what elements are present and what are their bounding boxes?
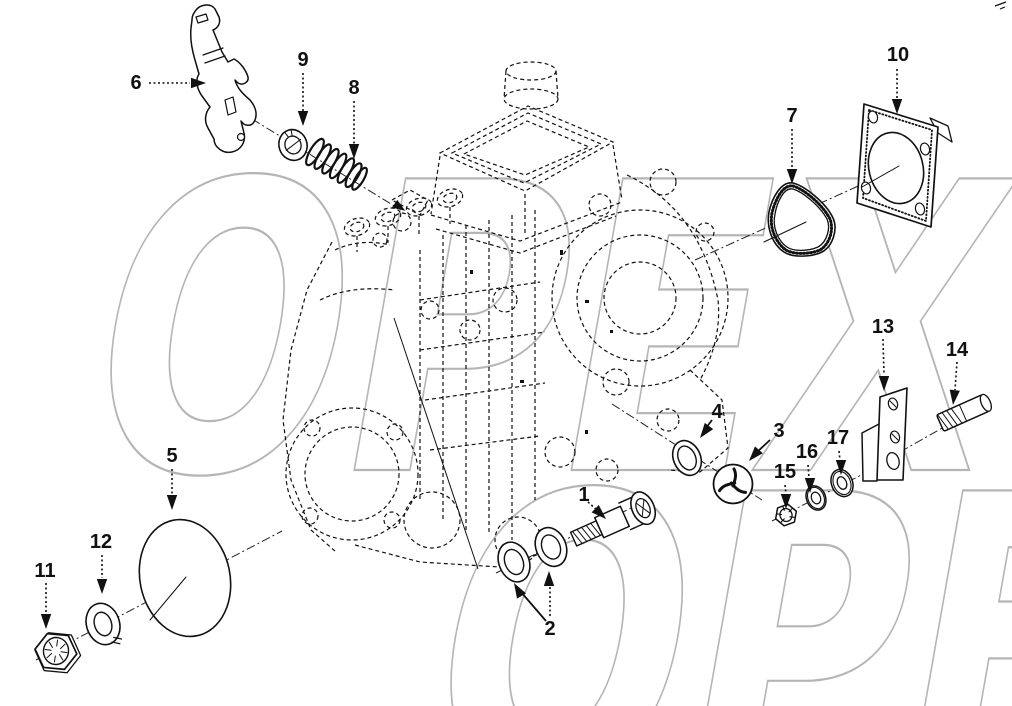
callout-label-13: 13 — [872, 317, 894, 337]
callout-label-15: 15 — [774, 462, 796, 482]
callout-label-17: 17 — [827, 428, 849, 448]
arrowhead-11 — [41, 614, 51, 629]
callout-label-10: 10 — [887, 45, 909, 65]
callout-label-5: 5 — [166, 446, 177, 466]
arrowhead-12 — [97, 579, 107, 594]
callout-label-16: 16 — [796, 442, 818, 462]
part-nut — [32, 630, 83, 675]
watermark-text-row2: OPEX — [398, 412, 1012, 706]
callout-label-6: 6 — [130, 73, 141, 93]
part-plug — [714, 465, 753, 504]
part-lock-washer — [81, 599, 126, 652]
callout-label-12: 12 — [90, 532, 112, 552]
callout-label-2: 2 — [544, 619, 555, 639]
callout-label-1: 1 — [578, 485, 589, 505]
callout-label-14: 14 — [946, 340, 968, 360]
callout-label-9: 9 — [297, 50, 308, 70]
callout-label-3: 3 — [773, 421, 784, 441]
parts-diagram-page: OPEX OPEX — [0, 0, 1012, 706]
callout-label-11: 11 — [34, 561, 55, 581]
callout-label-7: 7 — [786, 106, 797, 126]
diagram-canvas: OPEX OPEX — [0, 0, 1012, 706]
callout-label-4: 4 — [711, 402, 722, 422]
callout-label-8: 8 — [348, 78, 359, 98]
